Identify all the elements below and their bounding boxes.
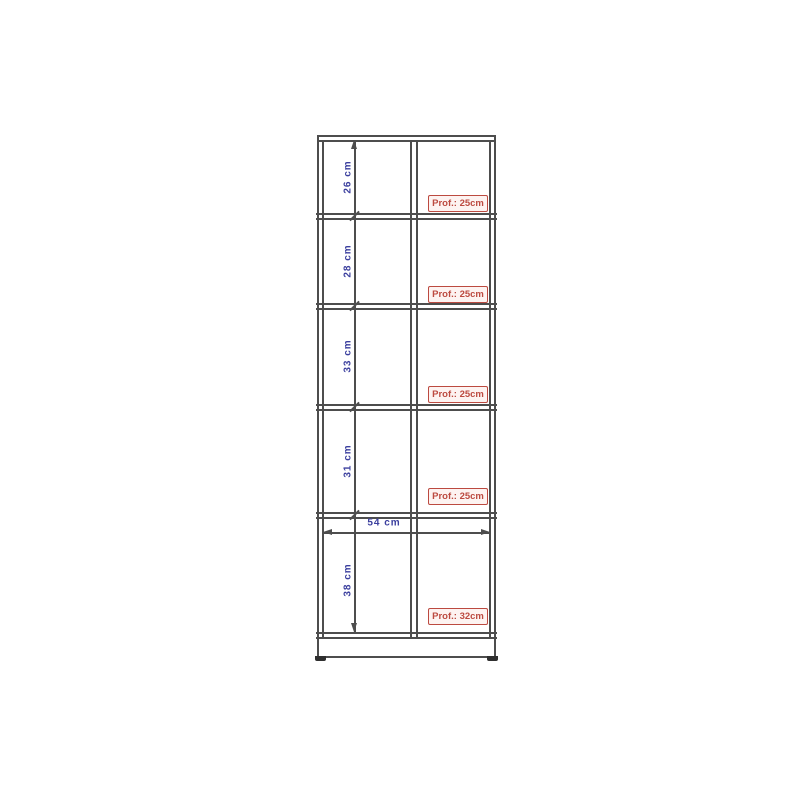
height-label-section-5: 38 cm (343, 563, 354, 596)
plinth-bottom-line (315, 656, 498, 658)
bottom-panel-bottom-line (316, 637, 497, 639)
depth-label-section-1: Prof.: 25cm (428, 195, 488, 212)
dimension-arrow-bottom (351, 623, 357, 632)
shelf-1-top-line (316, 213, 497, 215)
furniture-diagram: 26 cm 28 cm 33 cm 31 cm 38 cm 54 cm Prof… (0, 0, 800, 800)
width-dimension-line (323, 532, 490, 534)
height-label-section-2: 28 cm (343, 244, 354, 277)
center-divider-left-line (410, 140, 412, 637)
depth-label-section-4: Prof.: 25cm (428, 488, 488, 505)
height-label-section-1: 26 cm (343, 160, 354, 193)
depth-label-section-3: Prof.: 25cm (428, 386, 488, 403)
shelf-1-bottom-line (316, 218, 497, 220)
width-arrow-left (323, 529, 332, 535)
cabinet-top-inner-line (317, 140, 496, 142)
cabinet-right-inner-edge (489, 140, 491, 637)
depth-label-section-2: Prof.: 25cm (428, 286, 488, 303)
width-arrow-right (481, 529, 490, 535)
width-label: 54 cm (367, 518, 400, 529)
shelf-3-top-line (316, 404, 497, 406)
height-label-section-3: 33 cm (343, 339, 354, 372)
center-divider-right-line (416, 140, 418, 637)
height-label-section-4: 31 cm (343, 444, 354, 477)
depth-label-section-5: Prof.: 32cm (428, 608, 488, 625)
cabinet-top-outer-line (317, 135, 496, 137)
shelf-2-bottom-line (316, 308, 497, 310)
cabinet-left-inner-edge (322, 140, 324, 637)
shelf-4-bottom-line (316, 517, 497, 519)
shelf-4-top-line (316, 512, 497, 514)
left-foot (315, 656, 326, 661)
right-foot (487, 656, 498, 661)
shelf-3-bottom-line (316, 409, 497, 411)
bottom-panel-top-line (316, 632, 497, 634)
dimension-arrow-top (351, 140, 357, 149)
shelf-2-top-line (316, 303, 497, 305)
